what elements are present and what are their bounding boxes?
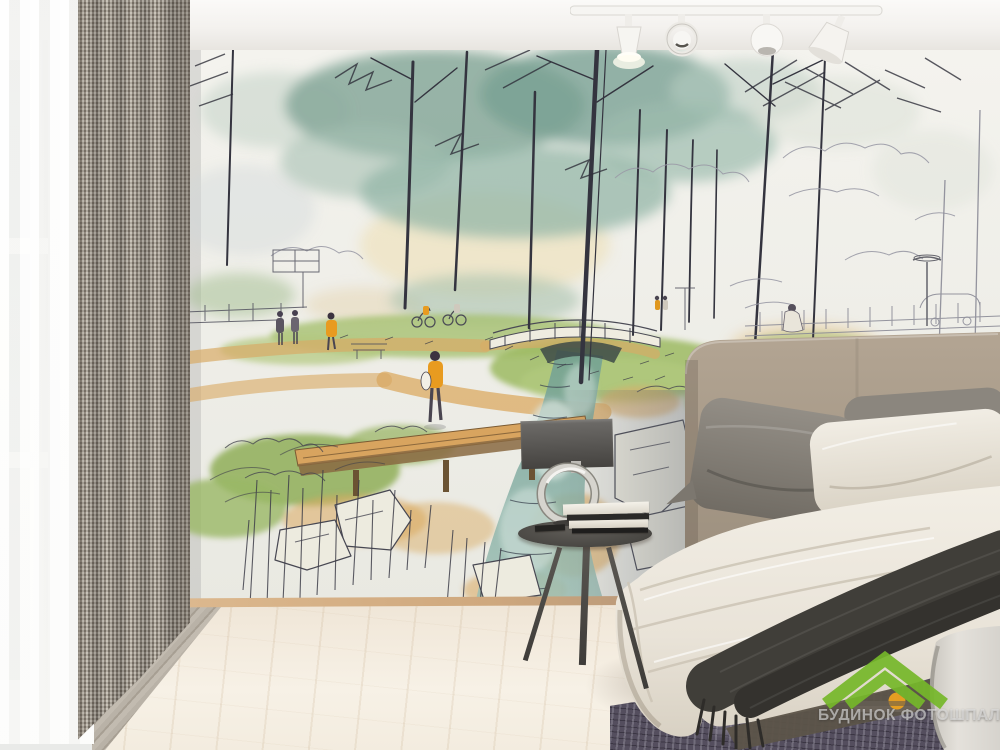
- table-leg: [606, 547, 649, 689]
- book: [572, 528, 648, 534]
- spotlight-ring: [667, 14, 697, 54]
- table-leg: [579, 543, 590, 665]
- table-leg: [523, 547, 562, 661]
- side-table: [495, 395, 685, 705]
- track-lighting: [570, 0, 890, 80]
- spotlight-ball: [751, 14, 783, 56]
- grey-curtain: [78, 0, 190, 750]
- watermark-text: БУДИНОК ФОТОШПАЛЕР: [818, 707, 986, 725]
- spotlight-cone-tilted: [807, 9, 859, 67]
- bedroom-scene: БУДИНОК ФОТОШПАЛЕР: [0, 0, 1000, 750]
- spotlight-cone-down: [613, 14, 645, 69]
